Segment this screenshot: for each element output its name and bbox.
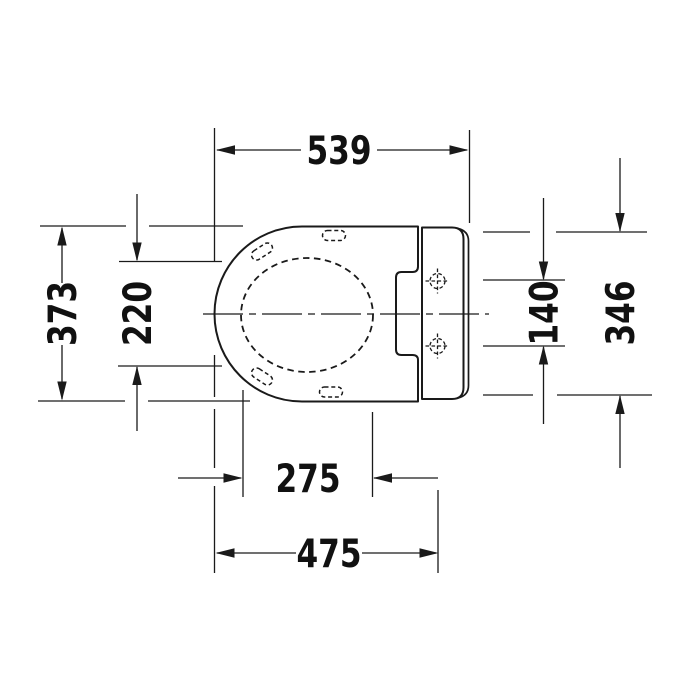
arrow-left-icon: [373, 473, 392, 482]
bumper-bottom-left: [250, 366, 275, 387]
arrow-down-icon: [132, 243, 141, 262]
arrow-left-icon: [216, 548, 235, 557]
technical-drawing-page: 539 373 220 140 346 275: [0, 0, 700, 700]
arrow-down-icon: [615, 213, 624, 232]
arrow-up-icon: [615, 395, 624, 414]
arrow-right-icon: [450, 145, 469, 154]
dim-label-373: 373: [41, 281, 86, 346]
dim-label-275: 275: [275, 457, 340, 502]
screw-cross-icon: [426, 269, 450, 294]
arrow-up-icon: [57, 227, 66, 246]
arrow-right-icon: [420, 548, 439, 557]
dim-label-346: 346: [599, 280, 644, 345]
dimension-opening-width: 275: [178, 390, 438, 502]
arrow-down-icon: [57, 382, 66, 401]
arrow-left-icon: [216, 145, 235, 154]
arrow-right-icon: [224, 473, 243, 482]
toilet-seat-top-view-drawing: 539 373 220 140 346 275: [0, 0, 700, 700]
arrow-down-icon: [539, 262, 548, 281]
bumper-bottom-center: [320, 387, 343, 397]
bumper-top-left: [250, 241, 275, 262]
dimension-seat-opening-depth: 220: [116, 194, 222, 431]
hinge-screw-mark-bottom: [426, 334, 450, 359]
hinge-screw-mark-top: [426, 269, 450, 294]
screw-cross-icon: [426, 334, 450, 359]
dim-label-475: 475: [296, 532, 361, 577]
hinge-unit-outline: [422, 228, 464, 400]
seat-opening-hidden-line: [241, 258, 373, 372]
arrow-up-icon: [539, 346, 548, 365]
dim-label-220: 220: [116, 281, 161, 346]
dim-label-539: 539: [306, 129, 371, 174]
bumper-top-center: [323, 231, 346, 241]
arrow-up-icon: [132, 366, 141, 385]
dim-label-140: 140: [522, 280, 567, 345]
dimension-unit-depth: 346: [483, 158, 652, 468]
